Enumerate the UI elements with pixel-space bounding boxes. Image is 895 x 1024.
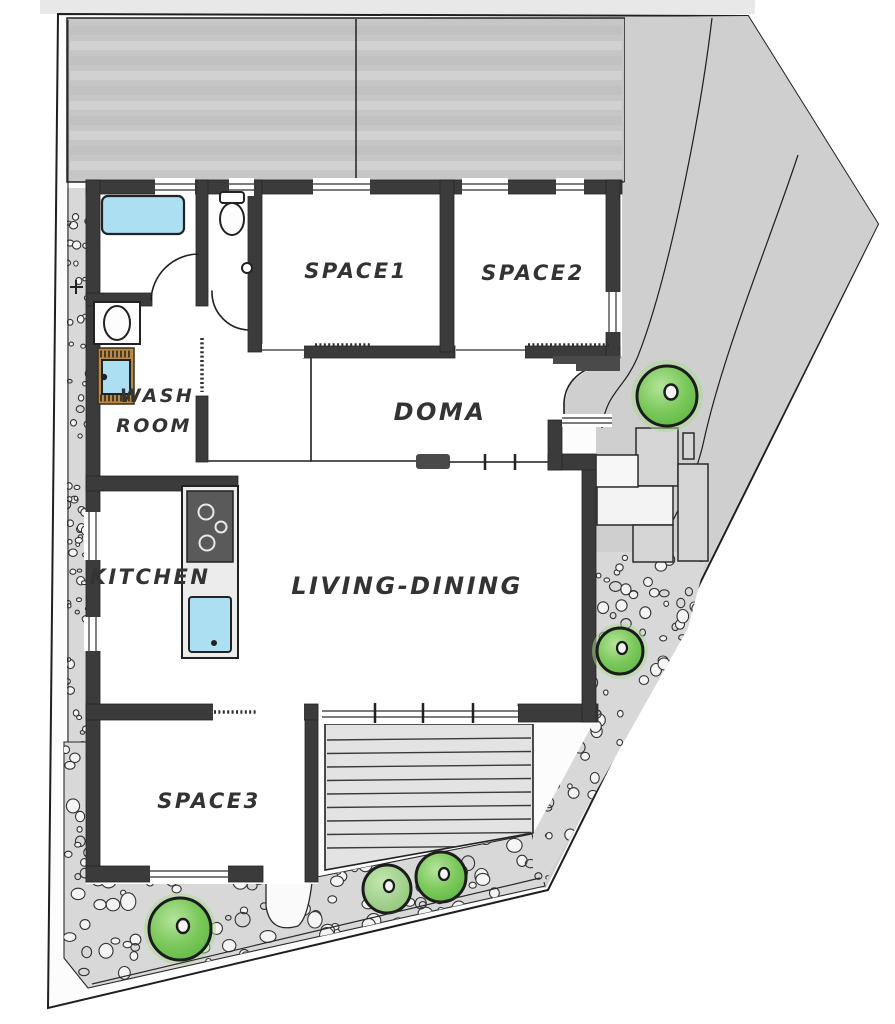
gravel-stone [525, 900, 540, 913]
gravel-stone [441, 966, 452, 978]
gravel-stone [514, 940, 529, 958]
gravel-stone [673, 668, 680, 673]
gravel-stone [74, 261, 78, 266]
driveway-streak [70, 71, 622, 80]
floor-plan-drawing: SPACE1 SPACE2 DOMA LIVING-DINING KITCHEN… [0, 0, 895, 1024]
gravel-stone [488, 928, 503, 940]
gravel-stone [615, 781, 624, 789]
gravel-stone [81, 344, 86, 348]
gravel-stone [123, 941, 132, 947]
gravel-stone [611, 863, 620, 874]
gravel-stone [308, 912, 322, 928]
gravel-stone [490, 915, 500, 926]
window [313, 178, 370, 196]
gravel-stone [320, 978, 334, 993]
gravel-stone [590, 773, 599, 784]
gravel-stone [247, 979, 258, 988]
label-kitchen: KITCHEN [90, 565, 211, 589]
genkan-step [553, 356, 620, 364]
gravel-stone [697, 880, 703, 884]
wall-living-right [582, 458, 596, 722]
gravel-stone [80, 920, 90, 930]
opening [456, 344, 525, 358]
label-space2: SPACE2 [481, 261, 585, 285]
label-doma: DOMA [394, 398, 487, 426]
window [84, 617, 102, 651]
gravel-stone [678, 694, 685, 702]
gravel-stone [698, 763, 708, 770]
opening [258, 702, 304, 722]
driveway-streak [70, 101, 622, 110]
gravel-stone [460, 938, 471, 946]
gravel-stone [227, 967, 238, 977]
gravel-stone [604, 862, 611, 870]
gravel-stone [565, 862, 576, 873]
driveway-streak [70, 161, 622, 170]
stepping-stone [597, 486, 673, 525]
gravel-stone [445, 941, 453, 948]
gravel-stone [518, 927, 532, 937]
gravel-stone [670, 735, 674, 740]
gravel-stone [484, 974, 492, 982]
gravel-stone [77, 598, 82, 602]
gravel-stone [399, 930, 407, 936]
gravel-stone [229, 977, 245, 994]
gravel-stone [451, 946, 462, 958]
gravel-stone [660, 636, 667, 641]
gravel-stone [567, 864, 573, 870]
gravel-stone [646, 762, 654, 771]
gravel-stone [676, 698, 683, 704]
gravel-stone [650, 588, 660, 597]
gravel-stone [75, 537, 82, 543]
gravel-stone [426, 971, 440, 984]
gravel-stone [677, 610, 689, 623]
gravel-stone [130, 952, 138, 961]
gravel-stone [635, 837, 645, 845]
gravel-stone [65, 761, 75, 769]
gravel-stone [288, 982, 295, 989]
gravel-stone [616, 600, 627, 611]
gravel-stone [604, 690, 608, 695]
gravel-stone [701, 736, 712, 746]
gravel-stone [66, 799, 79, 813]
entry-landing [596, 455, 638, 487]
gravel-stone [451, 955, 464, 969]
gravel-stone [703, 724, 708, 728]
gravel-stone [687, 833, 698, 844]
gravel-stone [275, 980, 286, 991]
gravel-stone [684, 860, 694, 869]
driveway-streak [70, 41, 622, 50]
gravel-stone [643, 763, 648, 768]
gravel-stone [469, 882, 476, 888]
gravel-stone [658, 725, 667, 734]
label-living-dining: LIVING-DINING [291, 572, 523, 600]
gravel-stone [459, 950, 467, 956]
toilet [220, 192, 244, 235]
label-space1: SPACE1 [304, 259, 408, 283]
entry-door [562, 414, 612, 427]
gravel-stone [74, 496, 78, 500]
gravel-stone [99, 943, 113, 958]
gravel-stone [644, 577, 653, 586]
gravel-stone [77, 315, 84, 323]
sliding-door-deck [322, 703, 518, 723]
gravel-stone [519, 966, 531, 978]
washing-machine [94, 302, 140, 344]
gravel-stone [700, 762, 711, 774]
label-washroom-2: ROOM [116, 415, 192, 437]
gravel-stone [78, 434, 82, 438]
genkan-step [576, 364, 620, 371]
gravel-stone [655, 750, 664, 760]
gravel-stone [690, 633, 695, 638]
stepping-stone [683, 433, 694, 459]
gravel-stone [71, 888, 85, 899]
gravel-stone [111, 938, 120, 944]
driveway-streak [70, 86, 622, 95]
gravel-stone [604, 578, 610, 582]
gravel-stone [521, 971, 535, 986]
gravel-stone [658, 831, 664, 837]
gravel-stone [692, 603, 702, 614]
gravel-stone [596, 573, 601, 578]
gravel-stone [664, 601, 669, 606]
gravel-stone [397, 960, 407, 968]
opening [262, 344, 304, 358]
gravel-stone [492, 924, 497, 929]
street-edge-wash [40, 0, 755, 14]
gravel-stone [331, 876, 344, 886]
gravel-stone [660, 776, 667, 783]
driveway-streak [70, 26, 622, 35]
gravel-stone [658, 658, 670, 670]
tree-icon [363, 865, 411, 913]
gravel-stone [106, 898, 120, 910]
gravel-stone [72, 214, 78, 221]
gravel-stone [664, 678, 676, 688]
door-knob [242, 263, 252, 273]
gravel-stone [695, 632, 707, 642]
window [556, 178, 584, 196]
stepping-stone [636, 428, 678, 486]
gravel-stone [533, 914, 541, 922]
driveway-streak [70, 116, 622, 125]
gravel-stone [636, 868, 640, 872]
gravel-stone [475, 908, 481, 914]
gravel-stone [635, 840, 646, 850]
gravel-stone [519, 976, 525, 982]
gravel-stone [640, 607, 651, 619]
gravel-stone [659, 797, 665, 802]
window-hatched [213, 702, 258, 722]
gravel-stone [399, 978, 407, 986]
gravel-stone [688, 810, 696, 819]
gravel-stone [616, 789, 622, 795]
gravel-stone [358, 970, 364, 976]
tree-icon [592, 623, 648, 679]
window [604, 292, 622, 332]
gravel-stone [495, 905, 504, 913]
gravel-stone [71, 420, 77, 426]
gravel-stone [332, 950, 344, 960]
driveway-streak [70, 131, 622, 140]
gravel-stone [568, 784, 573, 789]
gravel-stone [328, 896, 337, 903]
gravel-stone [69, 342, 73, 346]
driveway-streak [70, 146, 622, 155]
gravel-stone [616, 564, 623, 571]
wall-corridor-top [196, 180, 208, 306]
parking-area [67, 18, 625, 182]
wall-genkan-post [548, 420, 562, 470]
gravel-stone [665, 820, 675, 832]
gravel-stone [349, 953, 360, 961]
gravel-stone [688, 744, 695, 751]
label-space3: SPACE3 [157, 789, 261, 813]
gravel-stone [77, 715, 82, 719]
wall-space1-space2 [440, 180, 454, 352]
gravel-stone [498, 971, 506, 979]
gravel-stone [639, 676, 648, 685]
tree-icon [631, 360, 703, 432]
gravel-stone [67, 604, 71, 608]
gravel-stone [500, 940, 508, 949]
gravel-stone [622, 555, 627, 560]
tree-icon [416, 852, 466, 902]
gravel-stone [69, 549, 78, 556]
gravel-stone [605, 823, 613, 829]
gravel-stone [686, 827, 690, 830]
gravel-stone [702, 631, 708, 638]
gravel-stone [617, 740, 623, 746]
window [150, 864, 228, 884]
label-washroom-1: WASH [120, 385, 195, 407]
window [84, 512, 102, 560]
gravel-stone [685, 675, 697, 688]
gravel-stone [677, 824, 683, 830]
gravel-stone [529, 910, 540, 919]
gravel-stone [72, 241, 80, 249]
gravel-stone [687, 693, 693, 698]
gravel-stone [658, 873, 666, 883]
gravel-stone [481, 916, 494, 931]
gravel-stone [704, 779, 710, 785]
gravel-stone [476, 873, 490, 885]
floor-plan-page: SPACE1 SPACE2 DOMA LIVING-DINING KITCHEN… [0, 0, 895, 1024]
gravel-stone [604, 809, 610, 816]
gravel-stone [66, 687, 75, 695]
gravel-stone [653, 730, 661, 738]
gravel-stone [690, 602, 698, 611]
gravel-stone [619, 851, 627, 860]
gravel-stone [516, 924, 532, 942]
stepping-stone [633, 525, 673, 562]
doma-step [416, 454, 450, 469]
gravel-stone [694, 741, 703, 748]
gravel-stone [613, 826, 621, 835]
gravel-stone [430, 967, 446, 978]
tree-icon [144, 893, 216, 965]
wall-space3-right [305, 706, 318, 882]
gravel-stone [695, 609, 702, 616]
kitchen-sink [189, 597, 231, 652]
gravel-stone [675, 770, 684, 778]
window [462, 178, 508, 196]
gravel-stone [63, 933, 75, 942]
gravel-stone [77, 827, 82, 833]
wall-corridor-bottom [196, 396, 208, 462]
gravel-stone [463, 912, 473, 923]
gravel-stone [648, 737, 659, 745]
gravel-stone [74, 485, 80, 489]
gravel-stone [682, 668, 692, 680]
gravel-stone [568, 788, 579, 799]
gravel-stone [618, 710, 624, 717]
gravel-stone [318, 946, 331, 960]
window [155, 178, 195, 196]
gravel-stone [78, 395, 83, 401]
gravel-stone [581, 752, 590, 760]
driveway-streak [70, 56, 622, 65]
gravel-stone [65, 851, 72, 857]
gravel-stone [172, 885, 181, 893]
gravel-stone [507, 839, 522, 853]
gravel-stone [358, 951, 366, 960]
gravel-stone [581, 865, 591, 873]
gravel-stone [704, 840, 714, 851]
gravel-stone [403, 928, 409, 933]
gravel-stone [370, 933, 379, 940]
gravel-stone [75, 842, 81, 847]
bathtub [102, 196, 184, 234]
gravel-stone [663, 815, 670, 821]
gravel-stone [630, 852, 634, 855]
wall-row1-bottom-a [303, 346, 455, 358]
gravel-stone [275, 966, 284, 973]
gravel-stone [466, 942, 479, 954]
gravel-stone [598, 602, 609, 614]
gravel-stone [121, 893, 136, 911]
gravel-stone [70, 569, 76, 574]
gravel-stone [634, 816, 645, 826]
stepping-stone [678, 464, 708, 561]
gravel-stone [621, 584, 631, 595]
gravel-stone [592, 863, 602, 874]
gravel-stone [639, 746, 645, 753]
gravel-stone [546, 833, 552, 839]
gravel-stone [656, 856, 664, 863]
gravel-stone [655, 731, 666, 740]
gravel-stone [94, 900, 106, 910]
gravel-stone [76, 811, 85, 821]
gravel-stone [659, 754, 667, 760]
